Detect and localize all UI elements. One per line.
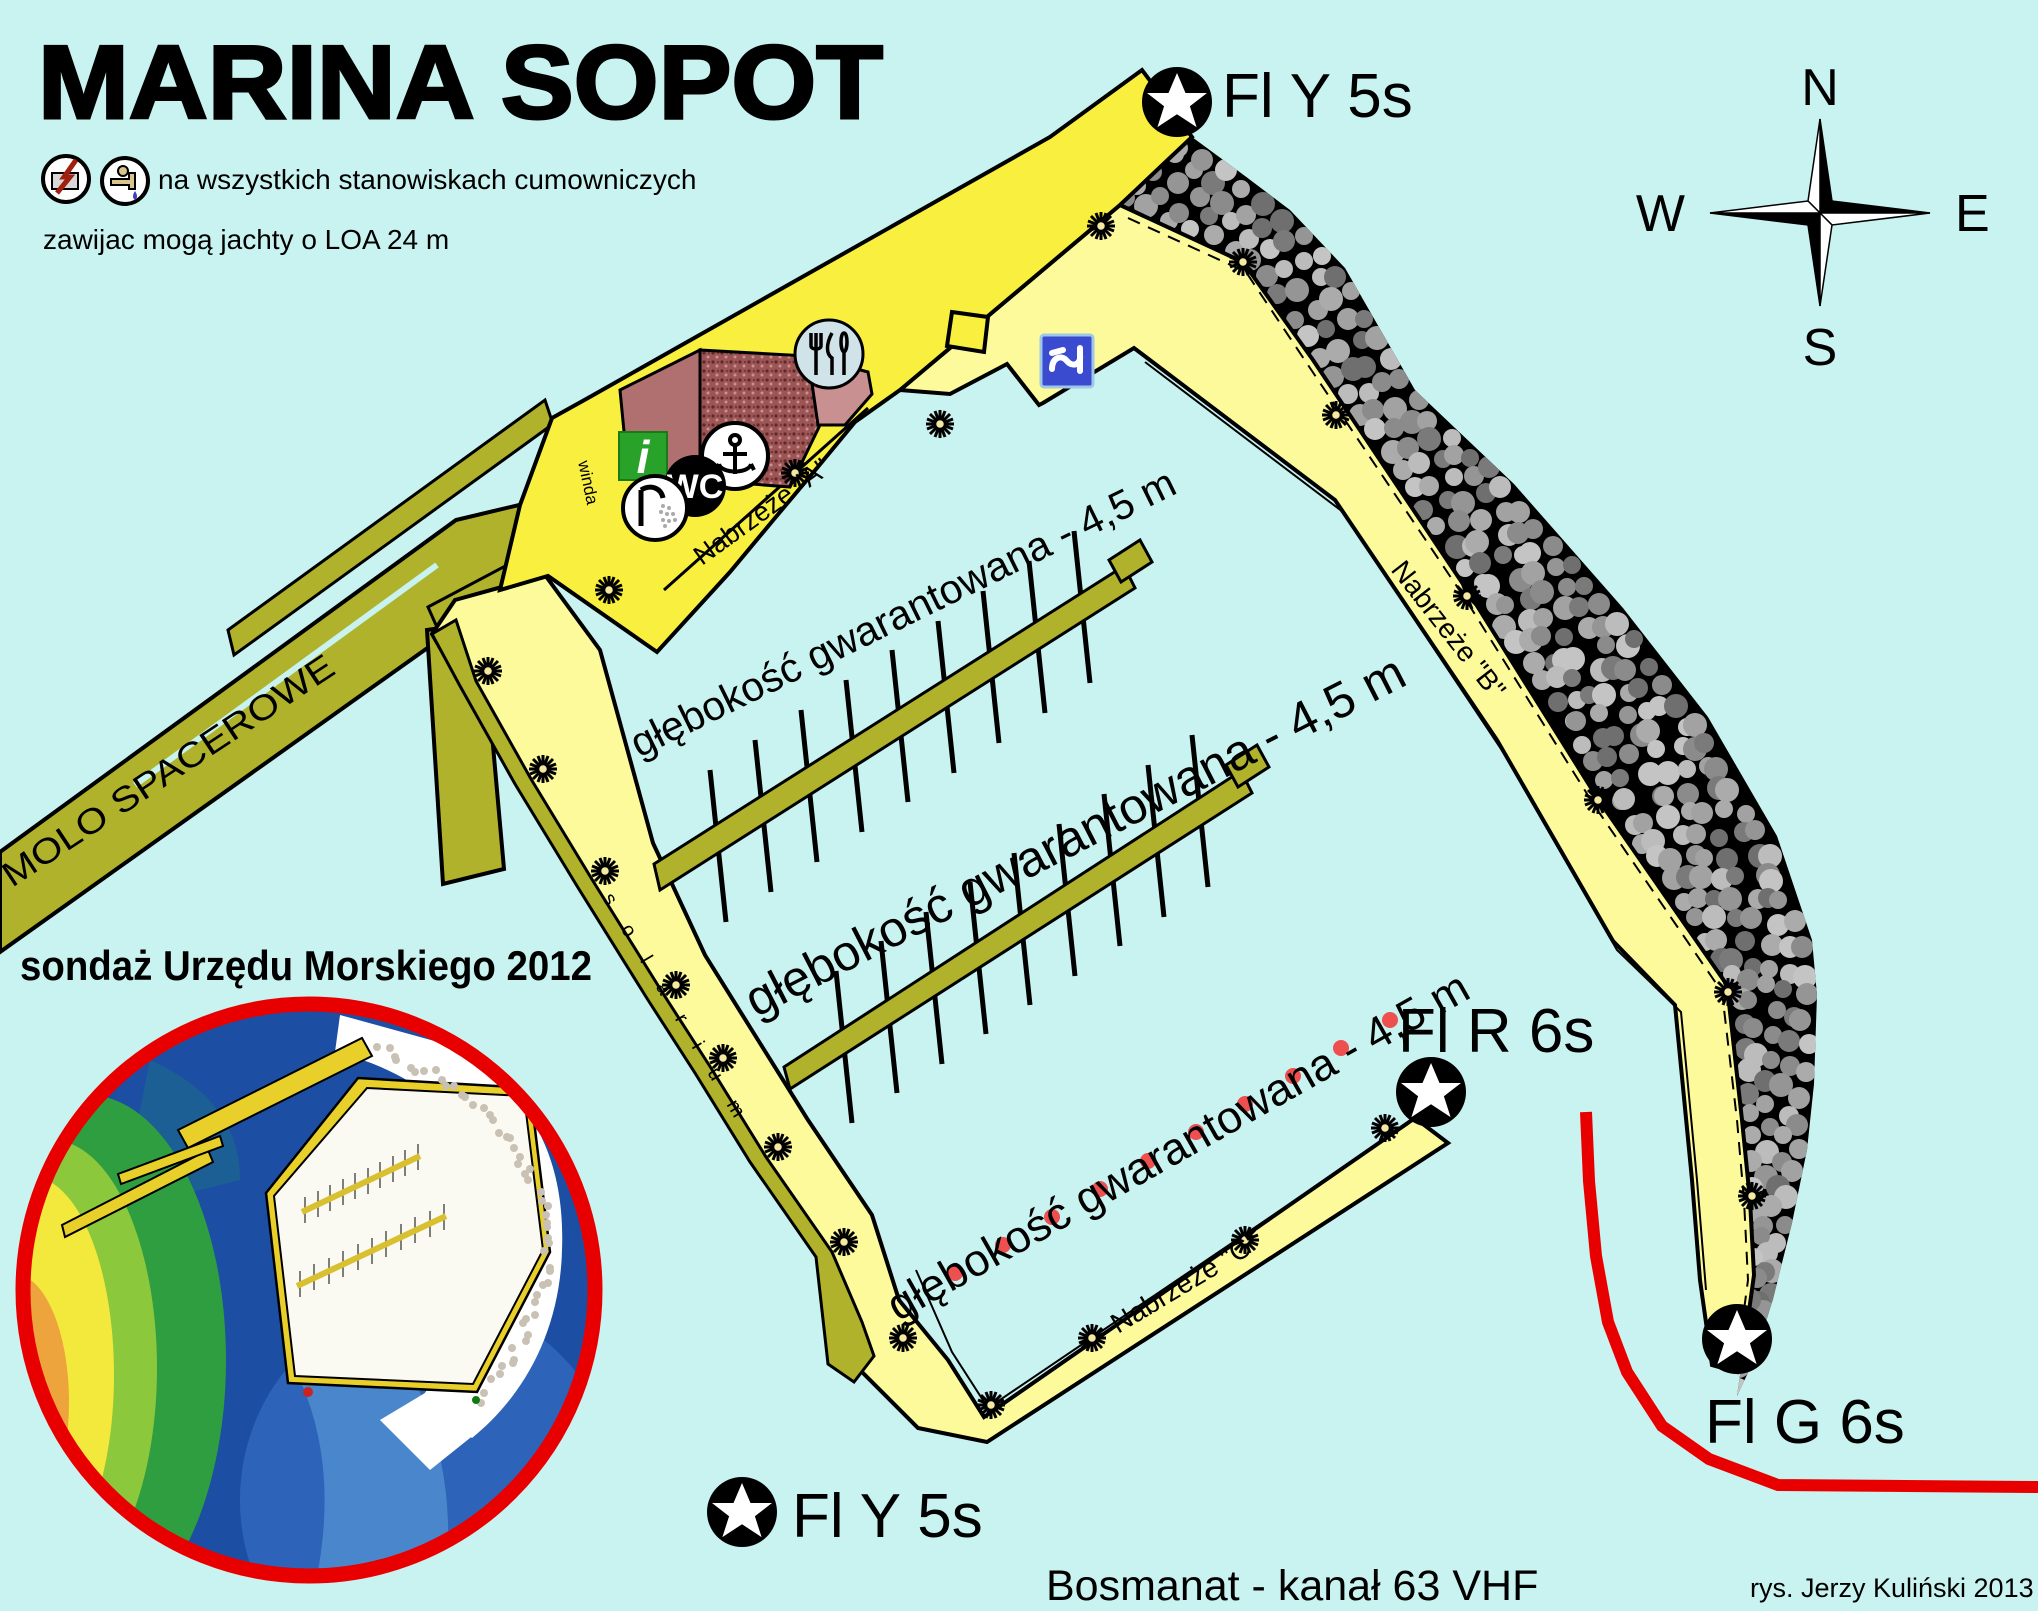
svg-text:Fl G 6s: Fl G 6s xyxy=(1705,1388,1905,1457)
svg-text:W: W xyxy=(1636,185,1685,243)
svg-text:na wszystkich stanowiskach cum: na wszystkich stanowiskach cumowniczych xyxy=(158,164,696,195)
svg-text:Fl Y 5s: Fl Y 5s xyxy=(792,1482,983,1551)
svg-text:N: N xyxy=(1801,59,1839,117)
svg-text:Fl Y 5s: Fl Y 5s xyxy=(1222,62,1413,131)
svg-text:S: S xyxy=(1803,319,1838,377)
svg-text:Bosmanat - kanał 63 VHF: Bosmanat - kanał 63 VHF xyxy=(1046,1562,1538,1610)
svg-text:zawijac mogą jachty o LOA 24 m: zawijac mogą jachty o LOA 24 m xyxy=(43,224,449,255)
svg-text:sondaż Urzędu Morskiego 2012: sondaż Urzędu Morskiego 2012 xyxy=(20,942,592,989)
svg-text:E: E xyxy=(1955,185,1990,243)
svg-text:MARINA SOPOT: MARINA SOPOT xyxy=(38,25,883,141)
svg-text:rys. Jerzy Kuliński 2013: rys. Jerzy Kuliński 2013 xyxy=(1750,1573,2034,1603)
